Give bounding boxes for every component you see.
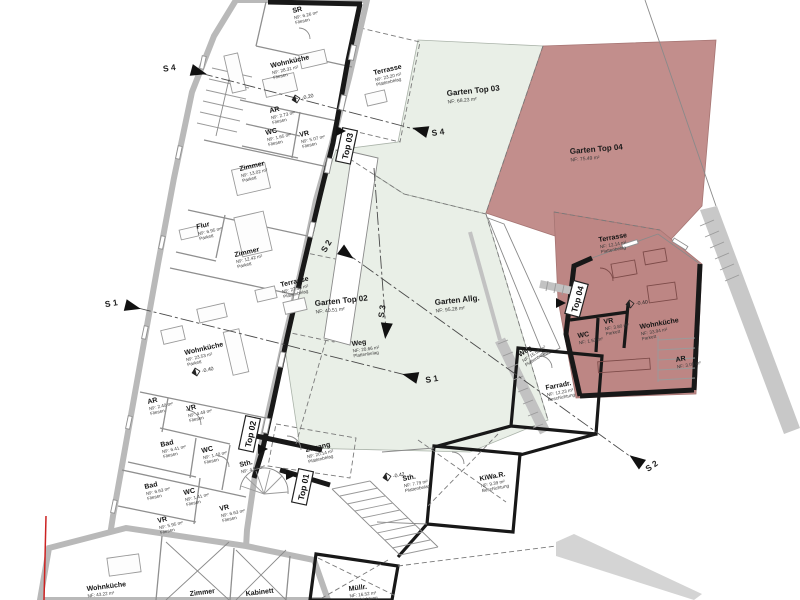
section-marker-s2-bottom bbox=[626, 450, 646, 469]
room-label-farradr: Farradr.NF: 12.23 m²Beschichtung bbox=[545, 380, 576, 403]
section-label-s1-left: S 1 bbox=[104, 297, 119, 309]
section-label-s2-bottom: S 2 bbox=[643, 458, 659, 474]
wall-top-black bbox=[268, 2, 362, 4]
stair-central bbox=[332, 481, 438, 555]
building-bottom-outline bbox=[40, 528, 328, 600]
room-label-kiwa: KiWa.R.NF: 9.39 m²Beschichtung bbox=[479, 471, 510, 494]
building-bottom-left bbox=[40, 528, 328, 600]
room-label-terrasse-top: TerrasseNF: 23.20 m²Plattenbelag bbox=[373, 64, 405, 88]
room-label-sth2: Sth.NF: 7.79 m²Plattenbelag bbox=[402, 471, 431, 493]
room-label-muell: Müllr.NF: 16.52 m²Beschichtung bbox=[348, 583, 378, 600]
section-label-s3: S 3 bbox=[376, 304, 388, 318]
section-label-s4-right: S 4 bbox=[431, 126, 445, 138]
neighbour-band-bottomright bbox=[556, 534, 702, 600]
floor-plan-page: S 4 S 4 S 1 S 1 S 2 S 2 S 3 Top 01 Top 0… bbox=[0, 0, 800, 600]
section-marker-s1-left bbox=[124, 299, 142, 315]
section-label-s4-left: S 4 bbox=[162, 62, 176, 74]
retaining-wall-right bbox=[700, 206, 800, 434]
floor-plan-canvas: S 4 S 4 S 1 S 1 S 2 S 2 S 3 Top 01 Top 0… bbox=[0, 0, 800, 600]
